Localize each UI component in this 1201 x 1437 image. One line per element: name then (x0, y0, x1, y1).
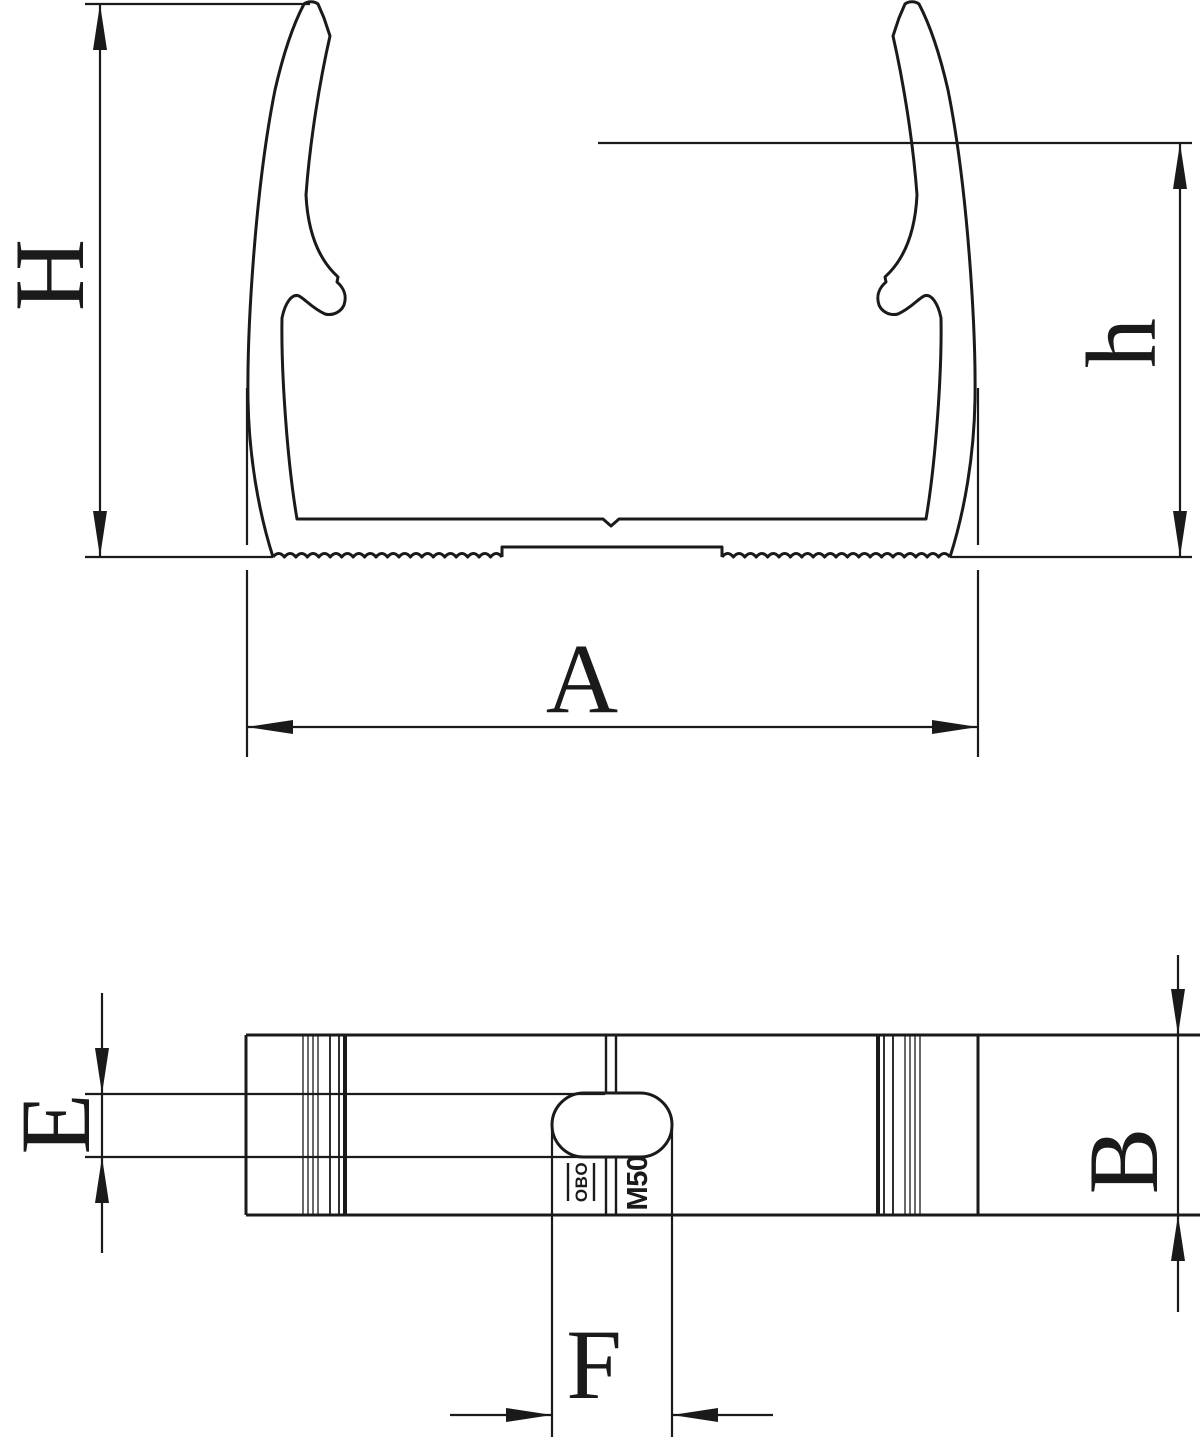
arrowhead-up-icon (1171, 1215, 1185, 1261)
dimension-A: A (247, 388, 978, 757)
arrowhead-left-icon (672, 1408, 718, 1422)
clamp-technical-drawing: H h A (0, 0, 1201, 1437)
base-center-step (502, 547, 722, 557)
arrowhead-down-icon (95, 1048, 109, 1094)
front-profile-view: H h A (0, 2, 1192, 757)
obo-logo: OBO (568, 1162, 594, 1202)
dimension-E-label: E (0, 1093, 111, 1154)
arrowhead-down-icon (93, 511, 107, 557)
dimension-h-label: h (1066, 318, 1177, 368)
arrowhead-up-icon (93, 4, 107, 50)
dimension-h: h (598, 143, 1192, 557)
arrowhead-right-icon (932, 720, 978, 734)
dimension-H-label: H (0, 239, 105, 311)
groove-stripes-left (303, 1035, 345, 1215)
dimension-A-label: A (546, 623, 618, 734)
plan-view: OBO M50 E B F (0, 955, 1200, 1437)
arrowhead-down-icon (1171, 989, 1185, 1035)
dimension-F-label: F (566, 1309, 622, 1420)
technical-drawing-page: H h A (0, 0, 1201, 1437)
dimension-B-label: B (1068, 1128, 1179, 1195)
groove-stripes-right (878, 1035, 920, 1215)
dimension-H: H (0, 4, 310, 557)
clip-profile-outline (248, 2, 975, 557)
arrowhead-down-icon (1173, 511, 1187, 557)
mounting-slot (552, 1093, 672, 1157)
serrated-base-right (722, 554, 950, 558)
dimension-B: B (1068, 955, 1185, 1312)
arrowhead-up-icon (95, 1157, 109, 1203)
size-code-marking: M50 (622, 1156, 654, 1211)
arrowhead-up-icon (1173, 143, 1187, 189)
obo-logo-text: OBO (572, 1162, 591, 1202)
arrowhead-left-icon (247, 720, 293, 734)
clip-body-edges (246, 1035, 1200, 1215)
dimension-F: F (450, 1125, 773, 1437)
serrated-base-left (273, 554, 502, 558)
arrowhead-right-icon (506, 1408, 552, 1422)
center-seam-lines (606, 1035, 616, 1215)
